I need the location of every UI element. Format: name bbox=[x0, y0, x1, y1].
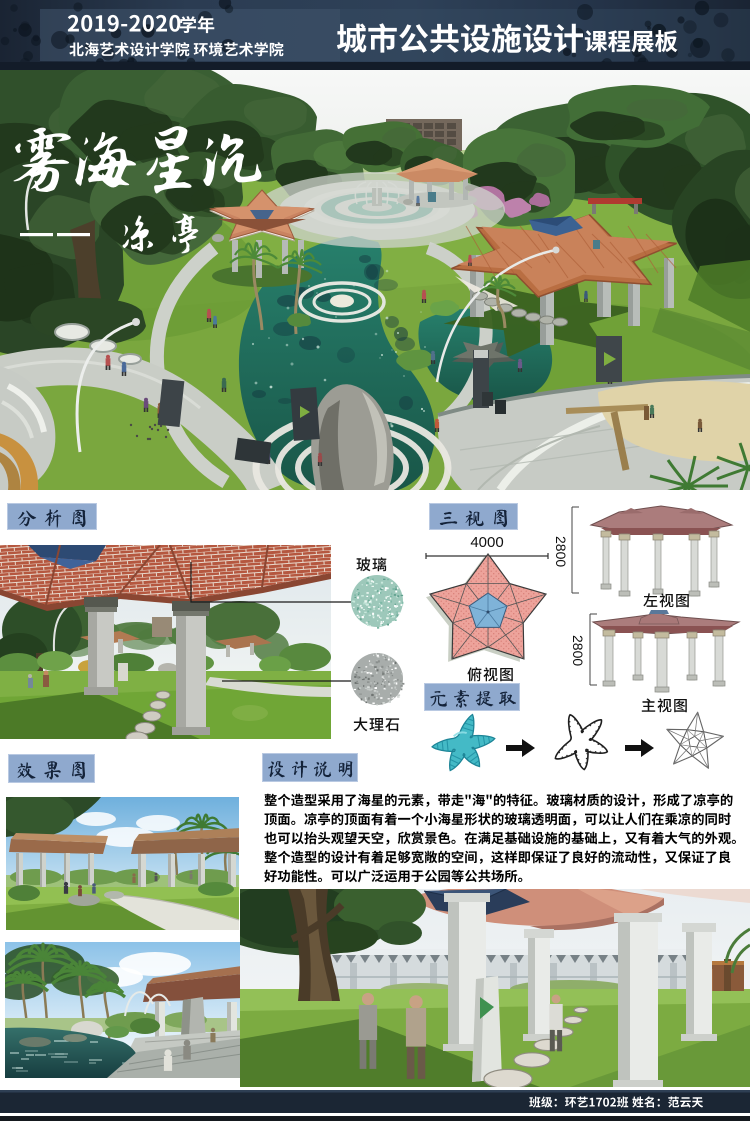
svg-text:2800: 2800 bbox=[553, 536, 569, 567]
svg-text:2800: 2800 bbox=[570, 635, 586, 666]
